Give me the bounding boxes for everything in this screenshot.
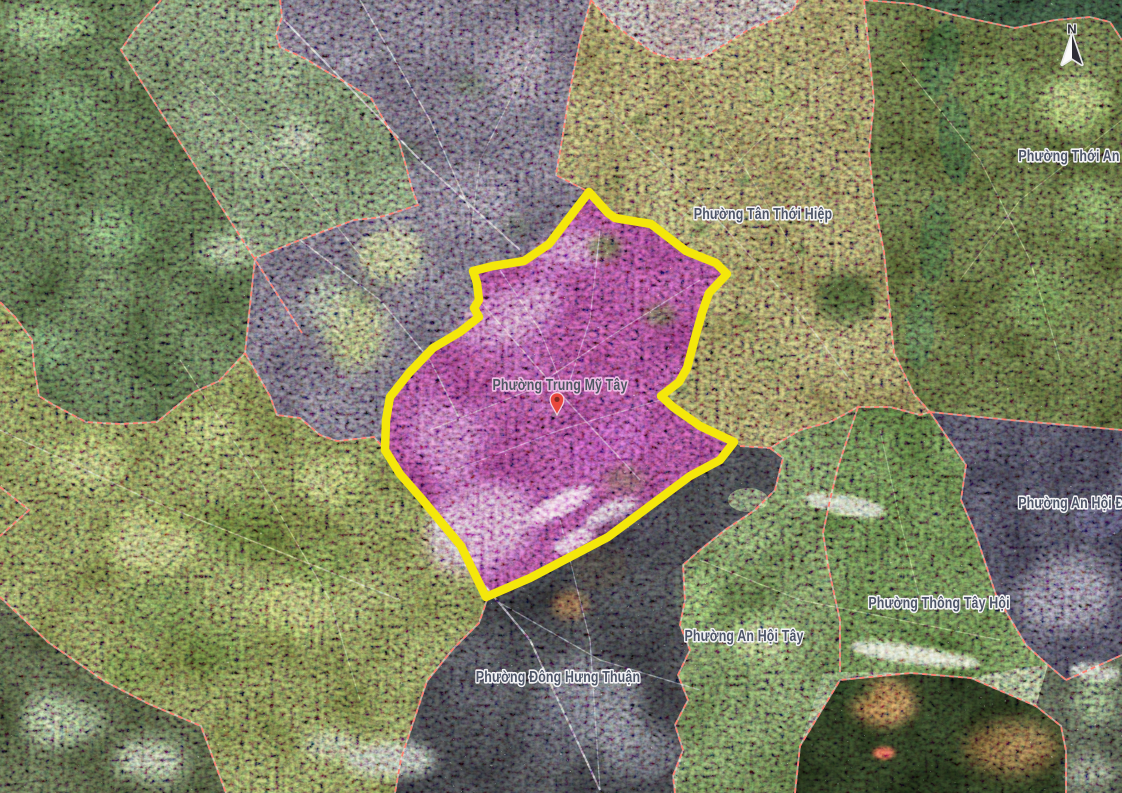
svg-text:Phường Thông Tây Hội: Phường Thông Tây Hội <box>868 594 1009 612</box>
svg-text:Phường Đông Hưng Thuận: Phường Đông Hưng Thuận <box>476 668 640 686</box>
svg-text:N: N <box>1067 22 1076 37</box>
svg-text:Phường Thới An: Phường Thới An <box>1018 147 1119 165</box>
svg-text:Phường An Hội Tây: Phường An Hội Tây <box>684 627 803 645</box>
svg-text:Phường Trung Mỹ Tây: Phường Trung Mỹ Tây <box>492 376 627 394</box>
svg-text:Phường An Hội Đông: Phường An Hội Đông <box>1018 494 1122 512</box>
svg-text:Phường Tân Thới Hiệp: Phường Tân Thới Hiệp <box>694 205 832 223</box>
